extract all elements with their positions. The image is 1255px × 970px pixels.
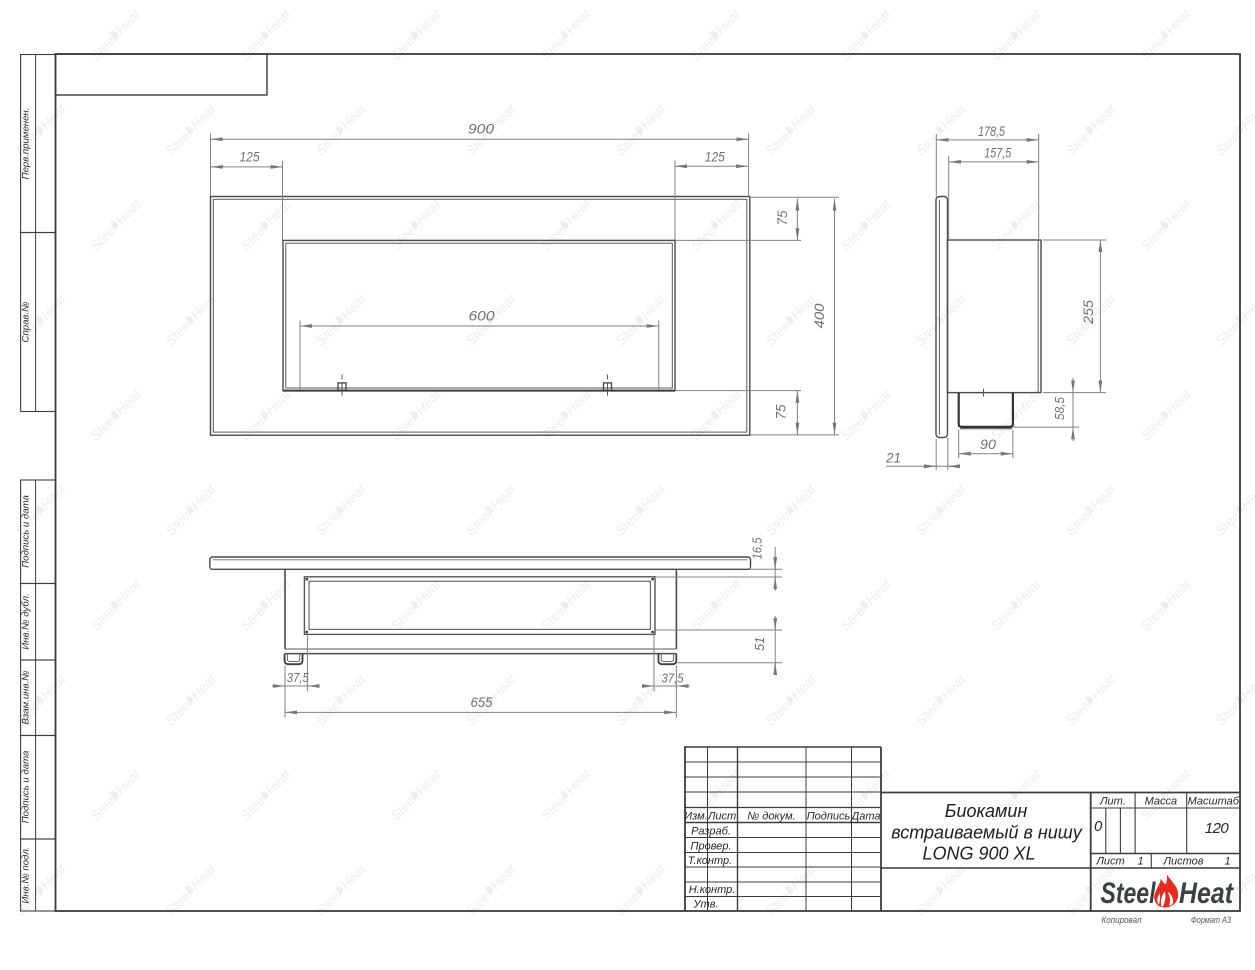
svg-text:Лит.: Лит. [1099, 796, 1126, 808]
svg-text:655: 655 [471, 695, 493, 710]
svg-text:Инв.№ подл.: Инв.№ подл. [20, 847, 31, 904]
svg-text:16,5: 16,5 [751, 537, 765, 559]
svg-text:1: 1 [1224, 856, 1230, 868]
svg-text:Подпись и дата: Подпись и дата [20, 495, 31, 568]
svg-text:Перв.применен.: Перв.применен. [20, 108, 31, 180]
svg-text:0: 0 [1094, 818, 1103, 835]
svg-text:Листов: Листов [1162, 856, 1203, 868]
svg-text:Т.контр.: Т.контр. [688, 855, 732, 867]
svg-text:Взам.инв.№: Взам.инв.№ [20, 670, 31, 724]
svg-text:Разраб.: Разраб. [691, 826, 731, 838]
svg-text:Heat: Heat [1179, 877, 1235, 910]
svg-text:58,5: 58,5 [1053, 397, 1067, 420]
svg-text:Провер.: Провер. [691, 841, 732, 853]
svg-text:125: 125 [705, 150, 725, 165]
svg-text:600: 600 [469, 309, 496, 324]
svg-text:37,5: 37,5 [662, 672, 684, 686]
svg-text:Масштаб: Масштаб [1188, 796, 1240, 808]
svg-text:Изм.: Изм. [684, 811, 707, 823]
svg-text:Копировал: Копировал [1102, 915, 1142, 925]
svg-text:157,5: 157,5 [984, 146, 1011, 161]
svg-text:Биокамин: Биокамин [945, 801, 1028, 821]
svg-text:21: 21 [885, 451, 901, 466]
svg-text:Подпись: Подпись [807, 811, 851, 823]
svg-text:Инв.№ дубл.: Инв.№ дубл. [20, 593, 31, 649]
svg-text:900: 900 [468, 122, 495, 137]
svg-text:178,5: 178,5 [978, 124, 1005, 139]
svg-text:Формат А3: Формат А3 [1191, 915, 1231, 925]
svg-text:LONG 900 XL: LONG 900 XL [922, 844, 1035, 864]
svg-text:125: 125 [240, 149, 260, 164]
svg-text:255: 255 [1081, 299, 1096, 325]
svg-text:37,5: 37,5 [287, 671, 309, 685]
svg-text:№ докум.: № докум. [747, 811, 795, 823]
svg-text:400: 400 [812, 303, 827, 329]
svg-text:Утв.: Утв. [693, 899, 719, 911]
svg-text:Н.контр.: Н.контр. [689, 884, 736, 896]
svg-text:Подпись и дата: Подпись и дата [20, 751, 31, 824]
svg-text:1: 1 [1137, 856, 1143, 868]
svg-text:Масса: Масса [1145, 796, 1178, 808]
svg-text:75: 75 [774, 404, 789, 419]
svg-text:Лист: Лист [1095, 856, 1124, 868]
svg-text:90: 90 [980, 437, 997, 452]
svg-text:Дата: Дата [849, 811, 880, 823]
svg-text:встраиваемый в нишу: встраиваемый в нишу [891, 823, 1082, 843]
svg-text:120: 120 [1205, 820, 1230, 837]
svg-text:51: 51 [753, 637, 767, 651]
svg-text:Steel: Steel [1101, 877, 1156, 910]
svg-text:Лист: Лист [707, 811, 736, 823]
svg-text:75: 75 [775, 210, 790, 225]
svg-text:Справ.№: Справ.№ [20, 302, 31, 343]
